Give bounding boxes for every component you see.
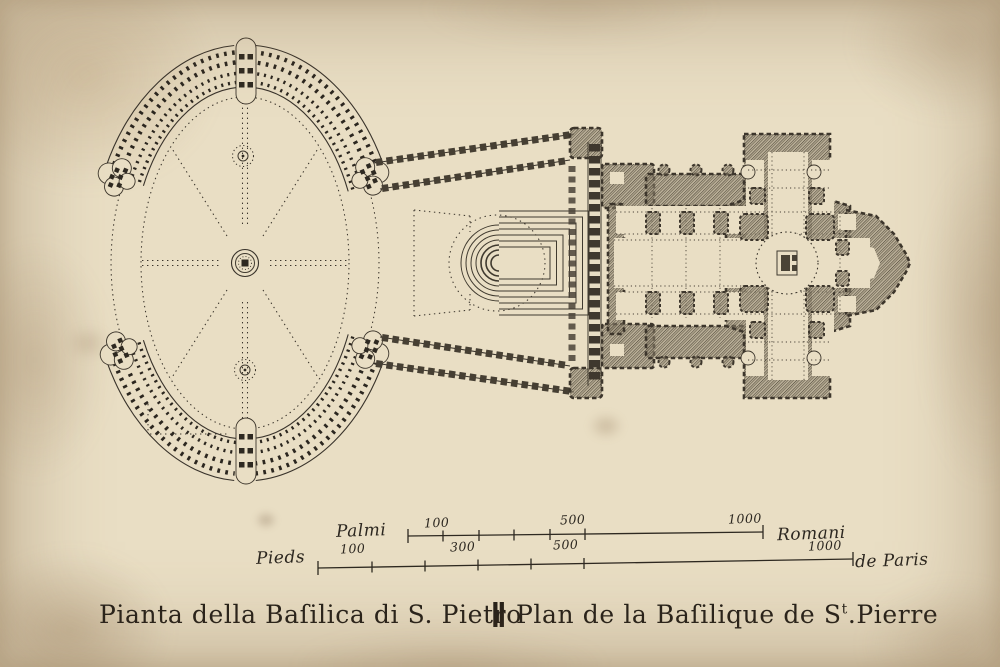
- palmi-tick-500: 500: [560, 512, 586, 528]
- nave-pier: [680, 292, 694, 314]
- corner-chapel: [807, 165, 821, 179]
- crossing-pier: [740, 214, 768, 240]
- piazza-boundary-dotted: [148, 404, 230, 434]
- colonnade-square: [91, 38, 395, 484]
- pieds-unit-label: Pieds: [256, 547, 306, 569]
- pavilion-south-west: [93, 326, 144, 377]
- transept-pier: [750, 188, 765, 204]
- palmi-unit-label: Palmi: [336, 520, 387, 542]
- crossing-pier: [740, 286, 768, 312]
- fan-steps: [481, 245, 499, 281]
- crossing-pier: [806, 214, 834, 240]
- gate-passage-north: [236, 38, 256, 104]
- nave-pier: [680, 212, 694, 234]
- nave-pier: [714, 212, 728, 234]
- facade-corner-north: [570, 128, 602, 158]
- scale-bar-lines: [318, 525, 853, 575]
- transept-pier: [750, 322, 765, 338]
- palmi-tick-1000: 1000: [728, 510, 762, 526]
- piazza-retta: [414, 210, 589, 316]
- basilica-body: [602, 134, 910, 398]
- corner-chapel: [807, 351, 821, 365]
- title-separator: ‖: [488, 598, 509, 627]
- transept-pier: [809, 322, 824, 338]
- pieds-tick-100: 100: [340, 541, 366, 557]
- corner-chapel: [741, 165, 755, 179]
- basilica-plan-drawing: [0, 0, 1000, 667]
- engraved-plate: Palmi 100 500 1000 Romani Pieds 100 300 …: [0, 0, 1000, 667]
- crossing-pier: [806, 286, 834, 312]
- corner-chapel: [741, 351, 755, 365]
- transept-pier: [809, 188, 824, 204]
- gate-passage-south: [236, 418, 256, 484]
- pavilion-north-west: [91, 151, 142, 202]
- nave-pier: [714, 292, 728, 314]
- nave-pier: [646, 292, 660, 314]
- pieds-tick-1000: 1000: [808, 537, 842, 553]
- fountain-south: [235, 360, 256, 381]
- title-french: Plan de la Baſilique de St.Pierre: [516, 600, 938, 629]
- title-french-prefix: Plan de la Baſilique de S: [516, 600, 842, 629]
- title-french-suffix: .Pierre: [848, 600, 938, 629]
- nave-pier: [646, 212, 660, 234]
- palmi-tick-100: 100: [424, 515, 450, 531]
- obelisk: [232, 250, 259, 277]
- pieds-rule: [318, 559, 853, 568]
- pieds-tick-300: 300: [450, 539, 476, 555]
- title-italian: Pianta della Baſilica di S. Pietro: [99, 600, 522, 629]
- pieds-tick-500: 500: [553, 537, 579, 553]
- corridor-wings: [374, 128, 602, 398]
- de-paris-system-label: de Paris: [855, 550, 929, 573]
- parvis-dotted-trapezoid: [414, 210, 470, 316]
